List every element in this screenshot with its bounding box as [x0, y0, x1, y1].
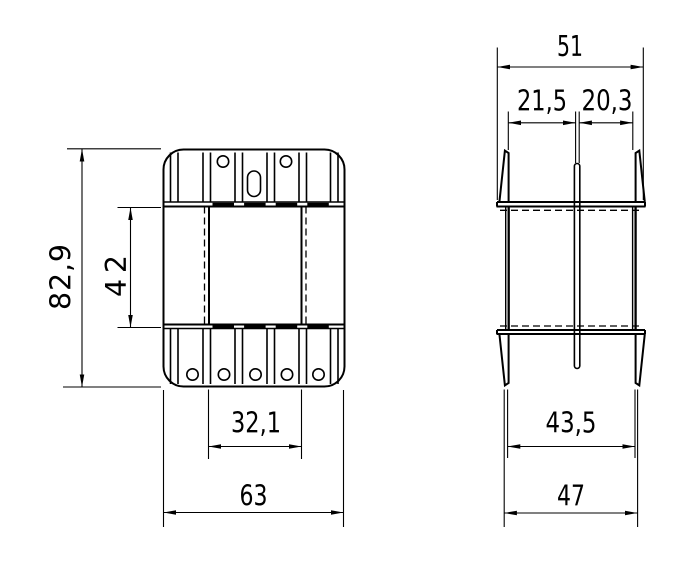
dim-side-width-label: 51 — [557, 30, 583, 63]
hole — [218, 369, 229, 380]
rib — [235, 329, 243, 385]
dimension-window-height: 42 — [100, 208, 161, 328]
left-fin-top — [499, 151, 508, 202]
dim-window-width-label: 32,1 — [231, 407, 281, 440]
rib — [299, 329, 307, 385]
rib — [235, 153, 243, 203]
dimension-flange-span: 43,5 — [508, 390, 635, 459]
dim-right-span-label: 20,3 — [582, 85, 633, 118]
rib — [267, 153, 275, 203]
front-outline — [164, 150, 345, 387]
hole — [187, 369, 198, 380]
center-slot — [248, 171, 261, 197]
dimension-right-span: 20,3 — [579, 85, 633, 164]
dimension-window-width: 32,1 — [209, 390, 302, 460]
dim-window-height-label: 42 — [100, 255, 133, 297]
pin-holes — [187, 156, 324, 380]
left-fin-bottom — [499, 334, 508, 385]
left-fin — [499, 151, 508, 386]
rib — [267, 329, 275, 385]
dim-overall-height-label: 82,9 — [45, 244, 78, 310]
center-blade — [574, 164, 579, 369]
technical-drawing: 82,9 42 32,1 63 51 — [0, 0, 695, 566]
right-fin-bottom — [636, 334, 645, 385]
hole — [280, 156, 291, 167]
dim-overall-width-label: 63 — [240, 480, 268, 513]
top-flange-ribs — [171, 153, 339, 203]
rib — [203, 329, 211, 385]
rib — [331, 329, 339, 385]
dim-pin-span-label: 47 — [557, 480, 585, 513]
hole — [250, 369, 261, 380]
rib — [171, 329, 179, 385]
rib — [331, 153, 339, 203]
rib — [171, 153, 179, 203]
hole — [281, 369, 292, 380]
hole — [217, 156, 228, 167]
dim-left-span-label: 21,5 — [517, 85, 567, 118]
rib — [203, 153, 211, 203]
front-view — [164, 150, 345, 387]
rib — [299, 153, 307, 203]
side-view — [497, 151, 646, 386]
hole — [313, 369, 324, 380]
dim-flange-span-label: 43,5 — [546, 407, 597, 440]
dimension-left-span: 21,5 — [508, 85, 575, 164]
